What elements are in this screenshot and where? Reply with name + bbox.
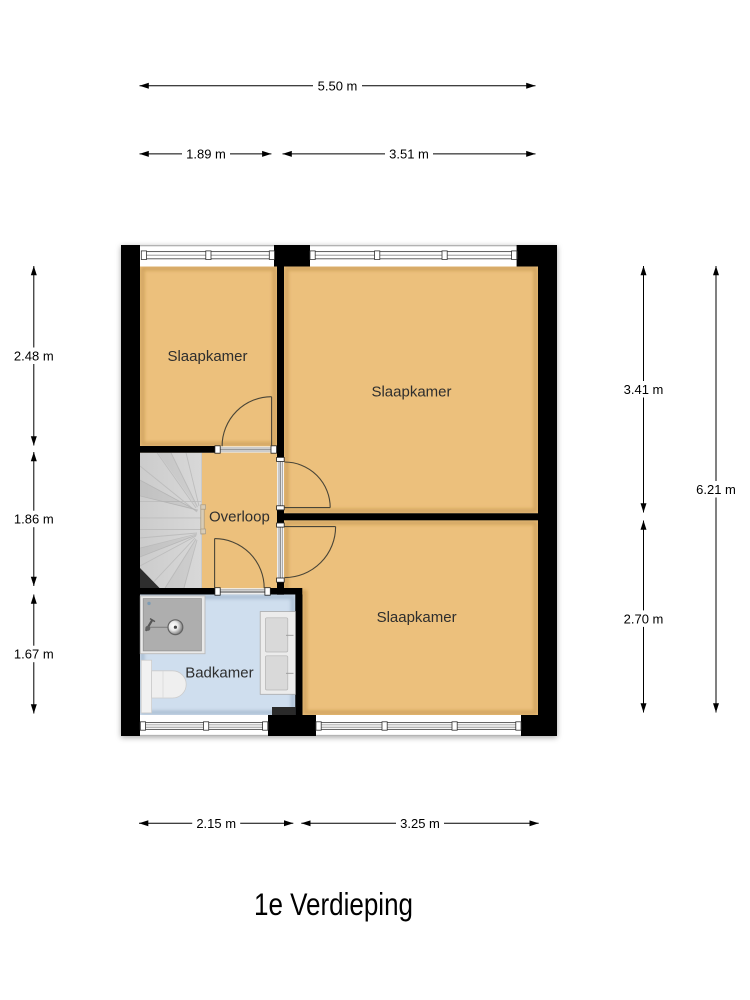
svg-text:Slaapkamer: Slaapkamer: [167, 348, 247, 365]
svg-text:1.89 m: 1.89 m: [186, 147, 226, 162]
svg-text:Slaapkamer: Slaapkamer: [377, 609, 457, 626]
svg-text:Overloop: Overloop: [209, 509, 270, 526]
svg-text:2.70 m: 2.70 m: [624, 611, 664, 626]
svg-text:2.48 m: 2.48 m: [14, 348, 54, 363]
svg-text:Slaapkamer: Slaapkamer: [371, 384, 451, 401]
svg-text:1.67 m: 1.67 m: [14, 647, 54, 662]
svg-text:3.41 m: 3.41 m: [624, 382, 664, 397]
svg-text:6.21 m: 6.21 m: [696, 482, 736, 497]
svg-text:2.15 m: 2.15 m: [196, 816, 236, 831]
svg-text:1e Verdieping: 1e Verdieping: [254, 886, 413, 922]
svg-text:1.86 m: 1.86 m: [14, 512, 54, 527]
svg-text:5.50 m: 5.50 m: [318, 79, 358, 94]
svg-text:3.25 m: 3.25 m: [400, 816, 440, 831]
svg-text:3.51 m: 3.51 m: [389, 147, 429, 162]
svg-text:Badkamer: Badkamer: [185, 665, 253, 682]
